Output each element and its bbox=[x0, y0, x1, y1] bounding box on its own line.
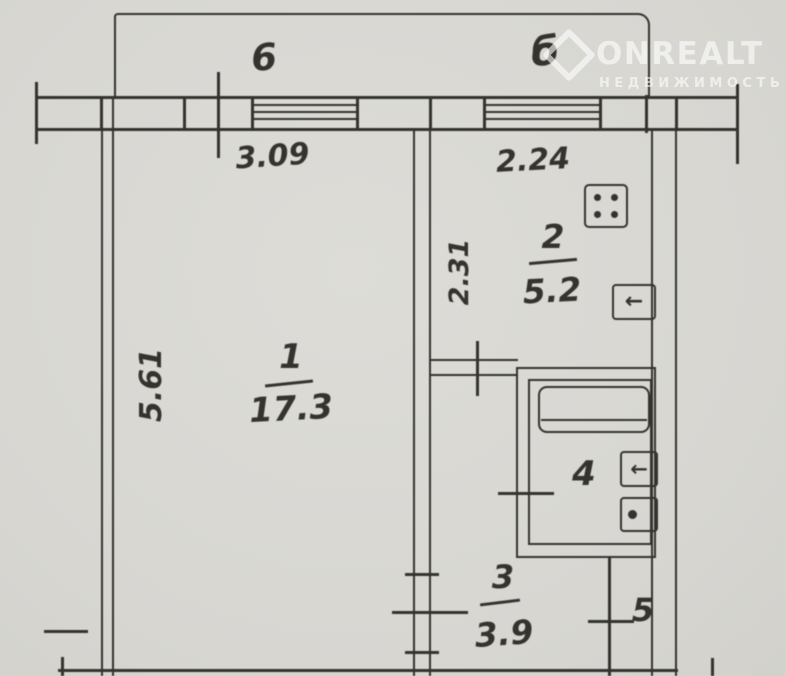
wall-band-joint bbox=[599, 96, 602, 130]
window-1-hatch-line bbox=[251, 118, 359, 120]
watermark: ONREALT НЕДВИЖИМОСТЬ bbox=[540, 14, 780, 98]
stove-burner-dot-icon bbox=[594, 211, 601, 218]
stove-burner-dot-icon bbox=[611, 211, 618, 218]
floor-plan: ← ← 6 б 3.09 2.24 5.61 2.31 1 17 bbox=[0, 0, 785, 676]
bathtub bbox=[538, 386, 650, 433]
wall-band-joint bbox=[675, 96, 678, 130]
bathroom-fixture-dot-icon bbox=[628, 510, 637, 519]
room1-area: 17.3 bbox=[250, 388, 332, 430]
dimension-label-top-left: 3.09 bbox=[224, 136, 321, 179]
bottom-dimension-tick bbox=[44, 630, 88, 633]
room3-number: 3 bbox=[478, 558, 528, 596]
bathroom-fixture-icon bbox=[620, 497, 658, 532]
bottom-outer-wall-line bbox=[58, 669, 678, 672]
kitchen-bottom-wall bbox=[430, 359, 518, 376]
wall-band-joint bbox=[251, 96, 254, 130]
room5-number: 5 bbox=[618, 591, 668, 629]
room3-underline bbox=[480, 599, 520, 607]
wall-band-joint bbox=[183, 96, 186, 130]
room2-area: 5.2 bbox=[516, 269, 588, 311]
door-opening-tick bbox=[405, 651, 439, 654]
closet-wall bbox=[608, 558, 611, 676]
door-opening-tick bbox=[392, 611, 468, 614]
bottom-dimension-tick bbox=[711, 658, 714, 676]
stove-burner-dot-icon bbox=[594, 194, 601, 201]
bathroom-vent-arrow-icon: ← bbox=[622, 453, 656, 485]
room2-underline bbox=[529, 258, 577, 265]
top-wall-inner-line bbox=[36, 128, 738, 131]
left-outer-wall bbox=[101, 97, 114, 676]
window-2-hatch-line bbox=[483, 111, 602, 113]
onrealt-logo-icon bbox=[542, 28, 596, 82]
room1-room2-wall bbox=[413, 130, 431, 676]
door-opening-tick bbox=[405, 573, 439, 576]
room1-underline bbox=[265, 379, 313, 387]
wall-band-joint bbox=[483, 96, 486, 130]
room2-number: 2 bbox=[528, 217, 578, 255]
dimension-label-kitchen: 2.31 bbox=[441, 227, 477, 317]
dimension-label-top-right: 2.24 bbox=[491, 140, 575, 182]
window-2-hatch-line bbox=[483, 118, 602, 120]
wall-band-joint bbox=[356, 96, 359, 130]
kitchen-vent-arrow-icon: ← bbox=[614, 286, 654, 318]
window-1-hatch-line bbox=[251, 104, 359, 106]
dimension-tick bbox=[35, 82, 38, 144]
dimension-label-left: 5.61 bbox=[132, 335, 172, 435]
kitchen-door-tick bbox=[476, 341, 479, 396]
bottom-corner-tick bbox=[61, 657, 64, 676]
balcony-left-label: 6 bbox=[239, 34, 290, 79]
watermark-brand: ONREALT bbox=[596, 36, 764, 72]
room4-number: 4 bbox=[559, 455, 609, 493]
dimension-tick bbox=[217, 72, 220, 158]
window-1-hatch-line bbox=[251, 111, 359, 113]
stove-icon bbox=[584, 184, 628, 228]
watermark-subtitle: НЕДВИЖИМОСТЬ bbox=[599, 76, 784, 91]
bathtub-rim-line bbox=[541, 419, 647, 421]
floor-plan-scan: ← ← 6 б 3.09 2.24 5.61 2.31 1 17 bbox=[0, 0, 785, 676]
room3-area: 3.9 bbox=[468, 612, 540, 655]
window-2-hatch-line bbox=[483, 104, 602, 106]
room1-number: 1 bbox=[266, 338, 316, 376]
stove-burner-dot-icon bbox=[611, 194, 618, 201]
wall-band-joint bbox=[429, 96, 432, 130]
bathroom-door-tick bbox=[498, 492, 554, 495]
